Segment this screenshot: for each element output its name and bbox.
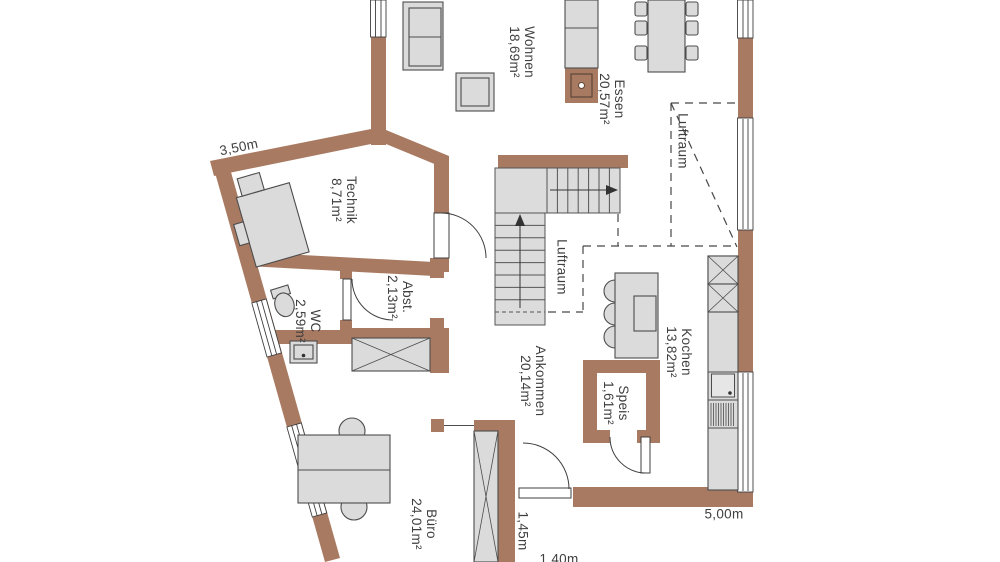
room-label-technik: Technik8,71m² [328, 176, 358, 224]
window-right-3-icon [738, 372, 754, 492]
room-label-speis: Speis1,61m² [600, 381, 630, 425]
furniture [222, 0, 738, 562]
dimension-bottom-right-wall: 5,00m [704, 508, 743, 523]
window-left-top-icon [371, 0, 387, 37]
window-right-1-icon [738, 0, 754, 38]
room-label-luftraum-gross: Luftraum [675, 113, 690, 169]
room-label-ankommen: Ankommen20,14m² [517, 346, 547, 417]
sofa [403, 2, 443, 70]
dining-table [635, 0, 698, 72]
speis-door-icon [610, 437, 650, 473]
dimension-bottom-edge: 1,40m [539, 553, 578, 562]
room-label-essen: Essen20,57m² [596, 73, 626, 125]
hall-wardrobe [352, 338, 430, 371]
entrance-door-icon [518, 443, 573, 507]
floor-plan: Wohnen18,69m² Essen20,57m² Luftraum Tech… [0, 0, 1000, 562]
armchair [456, 73, 494, 111]
technik-door-icon [434, 213, 486, 258]
window-right-2-icon [738, 118, 754, 230]
room-label-luftraum-klein: Luftraum [554, 239, 569, 295]
room-label-abst: Abst.2,13m² [384, 275, 414, 319]
entry-wardrobe [444, 426, 498, 562]
kitchen-island [604, 273, 658, 358]
room-label-buero: Büro24,01m² [408, 498, 438, 550]
room-label-wohnen: Wohnen18,69m² [506, 26, 536, 78]
floor-plan-drawing [0, 0, 1000, 562]
room-label-wc: WC2,59m² [292, 299, 322, 343]
room-label-kochen: Kochen13,82m² [663, 326, 693, 378]
wc-sink [290, 341, 317, 363]
dimension-entrance-door: 1,45m [515, 511, 530, 550]
kitchen-counter [708, 256, 738, 490]
